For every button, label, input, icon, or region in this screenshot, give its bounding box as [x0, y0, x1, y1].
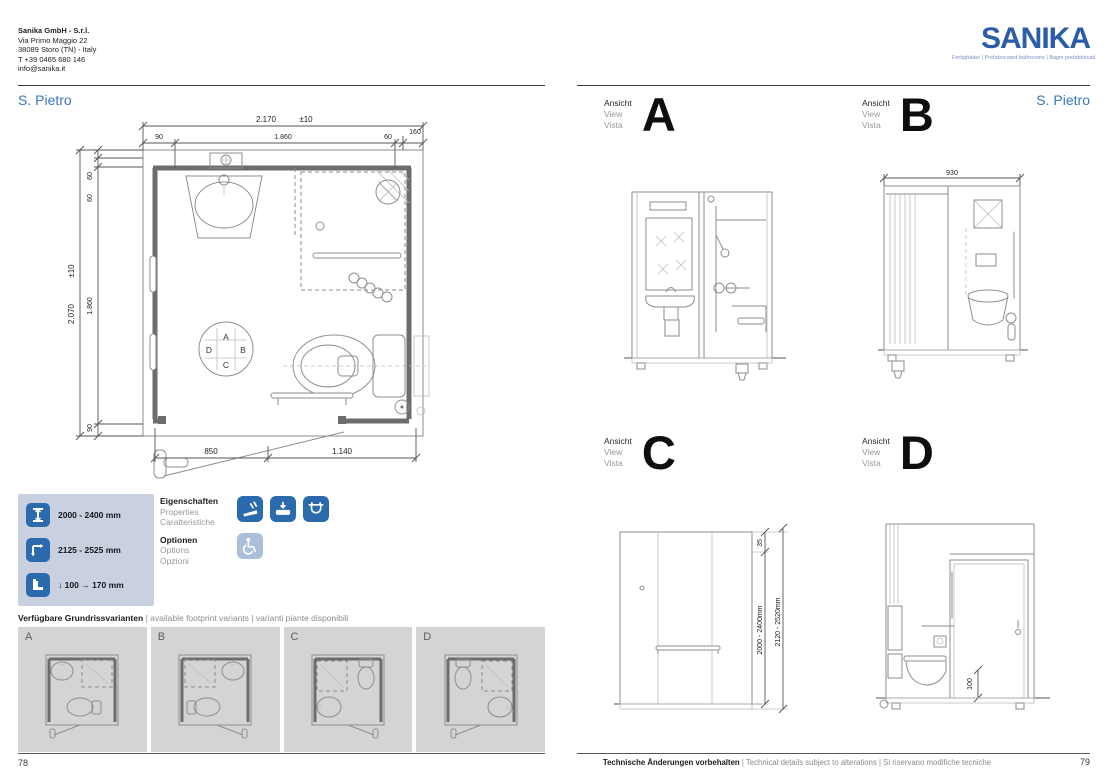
- view-label-it: Vista: [604, 458, 632, 469]
- property-icons: [237, 496, 329, 522]
- dim-view-b-930: 930: [946, 170, 958, 177]
- separator: |: [879, 758, 881, 767]
- variants-heading: Verfügbare Grundrissvarianten | availabl…: [18, 613, 349, 623]
- dim-height-total: 2.070: [67, 303, 76, 324]
- shower-tray-icon: [237, 496, 263, 522]
- options-label-en: Options: [160, 545, 218, 556]
- legend-footprint-label: 2125 - 2525 mm: [58, 545, 121, 555]
- dim-bottom-850: 850: [204, 447, 218, 456]
- variant-letter: C: [291, 631, 299, 643]
- view-label-en: View: [862, 447, 890, 458]
- variants-heading-it: varianti piante disponibili: [256, 613, 349, 623]
- shower-curtain: [349, 273, 392, 302]
- orientation-d: D: [206, 345, 212, 355]
- footer-en: Technical details subject to alterations: [746, 758, 877, 767]
- company-name: Sanika GmbH - S.r.l.: [18, 26, 96, 36]
- legend-step-down-value: 100: [65, 580, 79, 590]
- floor-step-icon: [26, 573, 50, 597]
- dimension-lines: [76, 122, 427, 462]
- brand-tagline: Fertigbäder | Prefabricated bathrooms | …: [952, 55, 1090, 61]
- variants-heading-en: available footprint variants: [150, 613, 249, 623]
- separator: |: [742, 758, 744, 767]
- dim-left-90: 90: [87, 424, 94, 432]
- view-letter-d: D: [900, 434, 934, 472]
- dim-view-c-35: 35: [757, 539, 764, 547]
- dim-top-60: 60: [384, 134, 392, 141]
- view-header-a: AnsichtViewVista A: [604, 98, 676, 134]
- legend-step-right-value: 170 mm: [92, 580, 124, 590]
- view-letter-b: B: [900, 96, 934, 134]
- dim-bottom-1140: 1.140: [332, 447, 353, 456]
- options-label-it: Opzioni: [160, 556, 218, 567]
- variant-plan-c: [298, 645, 398, 745]
- left-header-rule: [18, 85, 545, 86]
- legend-row-footprint: 2125 - 2525 mm: [26, 538, 146, 562]
- view-header-d: AnsichtViewVista D: [862, 436, 934, 472]
- right-footer-rule: [577, 753, 1090, 754]
- separator: |: [251, 613, 253, 623]
- properties-label-de: Eigenschaften: [160, 496, 218, 507]
- properties-label-en: Properties: [160, 507, 218, 518]
- variant-plan-d: [431, 645, 531, 745]
- dim-width-total: 2.170: [256, 115, 277, 124]
- properties-label-it: Caratteristiche: [160, 517, 218, 528]
- sanika-logo: SANIKA: [952, 24, 1090, 54]
- variant-plan-b: [165, 645, 265, 745]
- footer-disclaimer: Technische Änderungen vorbehalten | Tech…: [577, 758, 1017, 767]
- view-label-de: Ansicht: [604, 436, 632, 447]
- elevation-view-a: [620, 180, 790, 385]
- orientation-labels: A B C D: [206, 332, 246, 370]
- height-range-icon: [26, 503, 50, 527]
- dim-left-60a: 60: [87, 172, 94, 180]
- company-email: info@sanika.it: [18, 64, 96, 74]
- floor-plan-drawing: A B C D 2.170 ±10 90 1.860 60 160 2.070 …: [58, 106, 518, 488]
- down-arrow-icon: ↓: [58, 580, 62, 590]
- variant-letter: A: [25, 631, 32, 643]
- orientation-a: A: [223, 332, 229, 342]
- right-arrow-icon: →: [81, 580, 90, 590]
- view-label-de: Ansicht: [862, 98, 890, 109]
- variant-letter: D: [423, 631, 431, 643]
- legend-step-label: ↓ 100 → 170 mm: [58, 580, 124, 590]
- variant-cell-b: B: [151, 627, 280, 752]
- separator: |: [146, 613, 148, 623]
- brand-logo-block: SANIKA Fertigbäder | Prefabricated bathr…: [952, 24, 1090, 61]
- view-label-de: Ansicht: [862, 436, 890, 447]
- variant-plan-a: [32, 645, 132, 745]
- option-icons: [237, 533, 263, 559]
- variant-cell-c: C: [284, 627, 413, 752]
- elevation-view-c: 35 2000 - 2400mm 2120 - 2520mm: [612, 518, 817, 723]
- legend-panel: 2000 - 2400 mm 2125 - 2525 mm ↓ 100 → 17…: [18, 494, 154, 606]
- elevation-view-b: 930: [870, 168, 1055, 388]
- page-number-right: 79: [1070, 757, 1090, 767]
- datasheet-spread: Sanika GmbH - S.r.l. Via Primo Maggio 22…: [0, 0, 1108, 784]
- view-label-it: Vista: [862, 120, 890, 131]
- dim-left-1860: 1.860: [87, 297, 94, 315]
- variant-cell-a: A: [18, 627, 147, 752]
- company-phone: T +39 0465 680 146: [18, 55, 96, 65]
- dim-width-tol: ±10: [299, 115, 313, 124]
- variants-heading-de: Verfügbare Grundrissvarianten: [18, 613, 143, 623]
- options-label-de: Optionen: [160, 535, 218, 546]
- right-header-rule: [577, 85, 1090, 86]
- company-info: Sanika GmbH - S.r.l. Via Primo Maggio 22…: [18, 26, 96, 74]
- wall-hung-toilet-icon: [303, 496, 329, 522]
- footprint-range-icon: [26, 538, 50, 562]
- legend-row-step: ↓ 100 → 170 mm: [26, 573, 146, 597]
- dim-height-tol: ±10: [67, 264, 76, 278]
- dim-view-c-outer: 2120 - 2520mm: [775, 597, 782, 646]
- view-label-de: Ansicht: [604, 98, 632, 109]
- variants-grid: A B C: [18, 627, 545, 752]
- footer-it: Si riservano modifiche tecniche: [883, 758, 991, 767]
- dim-view-c-inner: 2000 - 2400mm: [757, 605, 764, 654]
- variant-cell-d: D: [416, 627, 545, 752]
- view-label-it: Vista: [604, 120, 632, 131]
- view-label-it: Vista: [862, 458, 890, 469]
- orientation-b: B: [240, 345, 246, 355]
- left-footer-rule: [18, 753, 545, 754]
- dim-top-1860: 1.860: [274, 134, 292, 141]
- dim-top-90: 90: [155, 134, 163, 141]
- legend-row-height: 2000 - 2400 mm: [26, 503, 146, 527]
- view-letter-c: C: [642, 434, 676, 472]
- bathtub-icon: [270, 496, 296, 522]
- dim-view-d-100: 100: [967, 678, 974, 690]
- page-number-left: 78: [18, 758, 28, 768]
- dim-top-160: 160: [409, 129, 421, 136]
- view-label-en: View: [604, 447, 632, 458]
- dim-left-60b: 60: [87, 194, 94, 202]
- properties-options-labels: Eigenschaften Properties Caratteristiche…: [160, 496, 218, 566]
- company-address2: 38089 Storo (TN) - Italy: [18, 45, 96, 55]
- view-label-en: View: [604, 109, 632, 120]
- variant-letter: B: [158, 631, 165, 643]
- company-address1: Via Primo Maggio 22: [18, 36, 96, 46]
- view-letter-a: A: [642, 96, 676, 134]
- view-label-en: View: [862, 109, 890, 120]
- view-header-b: AnsichtViewVista B: [862, 98, 934, 134]
- right-page-title: S. Pietro: [960, 92, 1090, 108]
- elevation-view-d: 100: [858, 514, 1068, 724]
- orientation-c: C: [223, 360, 229, 370]
- legend-height-label: 2000 - 2400 mm: [58, 510, 121, 520]
- wheelchair-icon: [237, 533, 263, 559]
- footer-de: Technische Änderungen vorbehalten: [603, 758, 740, 767]
- view-header-c: AnsichtViewVista C: [604, 436, 676, 472]
